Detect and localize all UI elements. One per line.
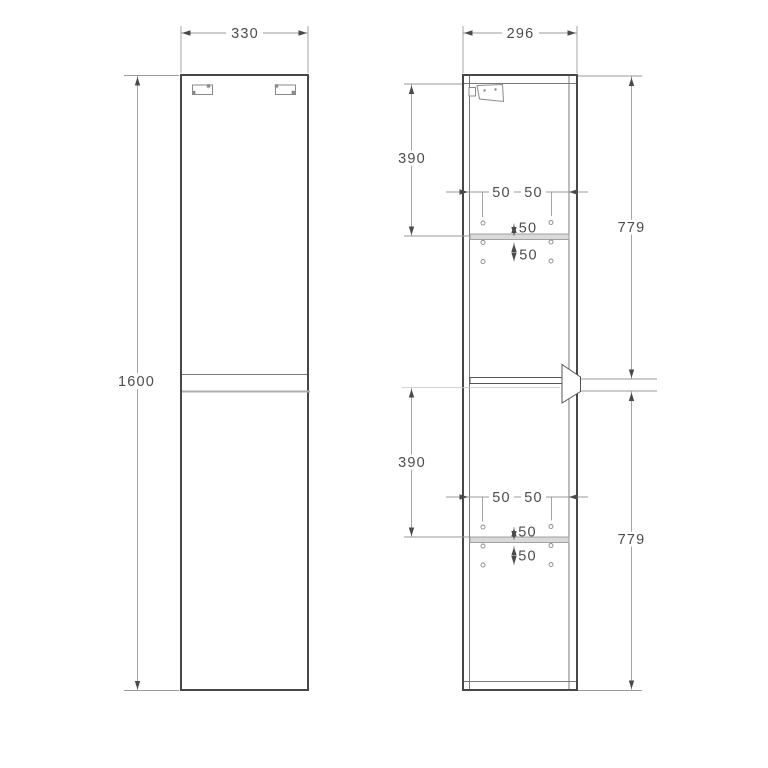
dimension-front-height: 1600 — [113, 76, 179, 691]
dimension-lower-door: 779 — [578, 392, 650, 691]
side-depth-label: 296 — [507, 26, 535, 42]
front-width-label: 330 — [231, 26, 259, 42]
front-cabinet-outline — [181, 75, 308, 690]
dimension-upper-door: 779 — [578, 76, 650, 379]
middle-divider — [470, 378, 562, 384]
lower-above-shelf-label: 50 — [518, 525, 537, 541]
lower-section-label: 390 — [398, 455, 426, 471]
lower-hole-back-offset-label: 50 — [524, 490, 543, 506]
cabinet-technical-drawing: 330 1600 296 390 390 — [0, 0, 768, 768]
upper-hole-front-offset-label: 50 — [492, 185, 511, 201]
lower-hole-front-offset-label: 50 — [492, 490, 511, 506]
wall-bracket-left — [192, 84, 213, 94]
side-view — [463, 75, 657, 690]
upper-section-label: 390 — [398, 151, 426, 167]
upper-above-shelf-label: 50 — [519, 221, 538, 237]
wall-bracket-right — [275, 84, 296, 94]
lower-below-shelf-label: 50 — [518, 549, 537, 565]
front-view — [181, 75, 310, 690]
front-height-label: 1600 — [118, 374, 155, 390]
upper-hole-back-offset-label: 50 — [524, 185, 543, 201]
dimension-upper-section: 390 — [394, 84, 469, 236]
lower-door-label: 779 — [618, 532, 646, 548]
dimension-front-width: 330 — [181, 26, 308, 74]
upper-below-shelf-label: 50 — [519, 248, 538, 264]
dimension-side-depth: 296 — [463, 26, 577, 74]
technical-drawing-page: 330 1600 296 390 390 — [0, 0, 768, 768]
upper-door-label: 779 — [618, 220, 646, 236]
